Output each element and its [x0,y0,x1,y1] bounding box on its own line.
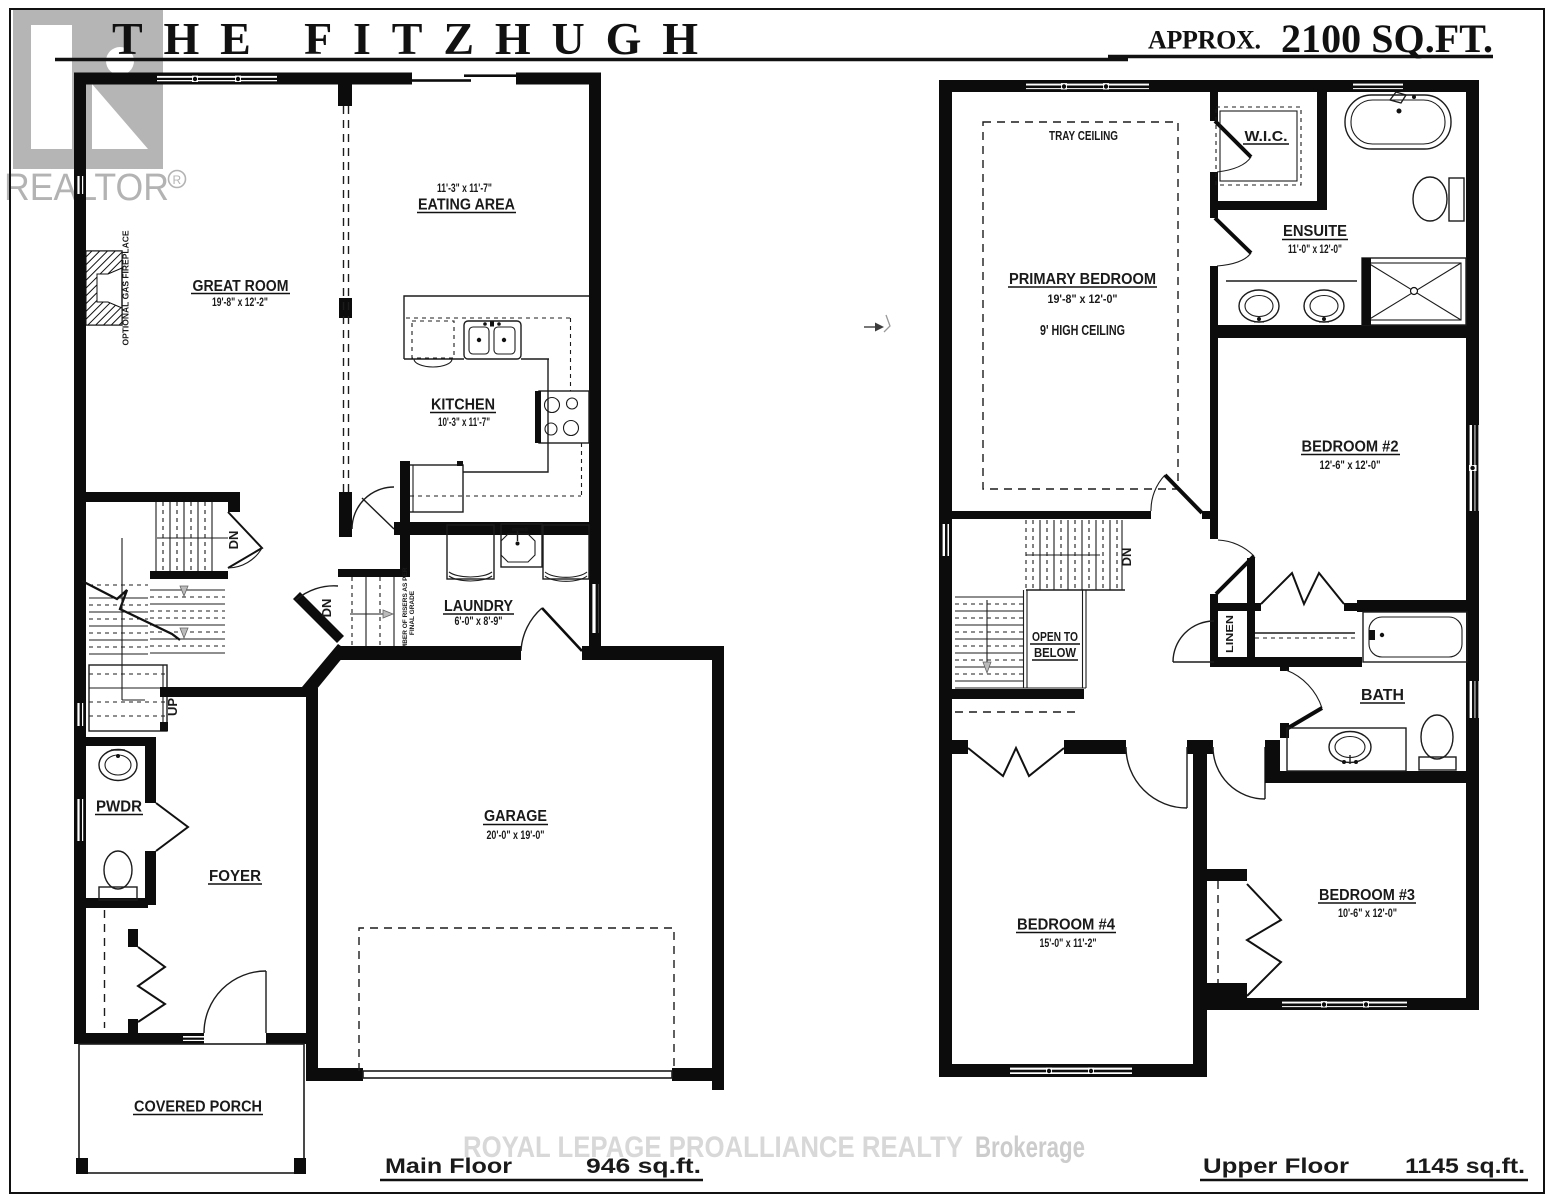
svg-text:20'-0" x 19'-0": 20'-0" x 19'-0" [487,830,545,842]
svg-text:LAUNDRY: LAUNDRY [444,598,513,615]
svg-text:10'-3" x 11'-7": 10'-3" x 11'-7" [438,417,490,429]
svg-text:6'-0" x 8'-9": 6'-0" x 8'-9" [455,616,503,628]
svg-text:W.I.C.: W.I.C. [1245,128,1288,145]
svg-text:12'-6" x 12'-0": 12'-6" x 12'-0" [1320,460,1381,472]
svg-text:KITCHEN: KITCHEN [431,397,495,414]
svg-text:DN: DN [319,599,334,618]
svg-text:ENSUITE: ENSUITE [1283,223,1347,240]
svg-text:DN: DN [226,531,241,550]
svg-text:1145 sq.ft.: 1145 sq.ft. [1405,1155,1525,1178]
svg-text:19'-8" x 12'-0": 19'-8" x 12'-0" [1048,294,1118,306]
svg-text:BEDROOM #3: BEDROOM #3 [1319,887,1415,904]
svg-text:BEDROOM #2: BEDROOM #2 [1302,439,1399,456]
svg-text:EATING AREA: EATING AREA [418,197,515,214]
svg-text:11'-0" x 12'-0": 11'-0" x 12'-0" [1288,244,1342,256]
svg-text:15'-0" x 11'-2": 15'-0" x 11'-2" [1040,938,1097,950]
svg-text:NUMBER OF RISERS AS PER: NUMBER OF RISERS AS PER [402,567,409,658]
svg-text:APPROX.: APPROX. [1148,26,1261,55]
svg-text:UP: UP [165,698,180,716]
svg-text:Main Floor: Main Floor [385,1155,512,1178]
svg-text:FINAL GRADE: FINAL GRADE [409,590,416,635]
svg-text:9' HIGH CEILING: 9' HIGH CEILING [1040,323,1125,339]
svg-text:2100 SQ.FT.: 2100 SQ.FT. [1281,16,1493,61]
svg-text:BATH: BATH [1361,687,1404,704]
svg-text:TRAY CEILING: TRAY CEILING [1049,129,1118,143]
svg-text:OPTIONAL GAS FIREPLACE: OPTIONAL GAS FIREPLACE [121,230,131,345]
svg-text:946 sq.ft.: 946 sq.ft. [586,1155,701,1178]
svg-text:GREAT ROOM: GREAT ROOM [193,278,289,295]
svg-text:10'-6" x 12'-0": 10'-6" x 12'-0" [1338,908,1397,920]
svg-text:11'-3" x 11'-7": 11'-3" x 11'-7" [437,183,492,195]
svg-text:OPEN TO: OPEN TO [1032,629,1078,644]
svg-text:PWDR: PWDR [96,799,142,816]
svg-text:LINEN: LINEN [1225,615,1236,653]
svg-text:R: R [173,173,182,187]
svg-text:COVERED PORCH: COVERED PORCH [134,1099,262,1116]
svg-text:19'-8" x 12'-2": 19'-8" x 12'-2" [212,297,268,309]
svg-text:DN: DN [1119,548,1134,567]
svg-text:Upper Floor: Upper Floor [1203,1155,1349,1178]
svg-text:REALTOR: REALTOR [4,167,169,209]
svg-text:BELOW: BELOW [1034,645,1077,660]
svg-text:FOYER: FOYER [209,868,261,885]
svg-text:Brokerage: Brokerage [975,1131,1085,1164]
svg-text:GARAGE: GARAGE [484,808,547,825]
svg-text:BEDROOM #4: BEDROOM #4 [1017,917,1115,934]
svg-text:PRIMARY BEDROOM: PRIMARY BEDROOM [1009,271,1156,288]
svg-text:ROYAL LEPAGE PROALLIANCE REALT: ROYAL LEPAGE PROALLIANCE REALTY [463,1131,963,1164]
